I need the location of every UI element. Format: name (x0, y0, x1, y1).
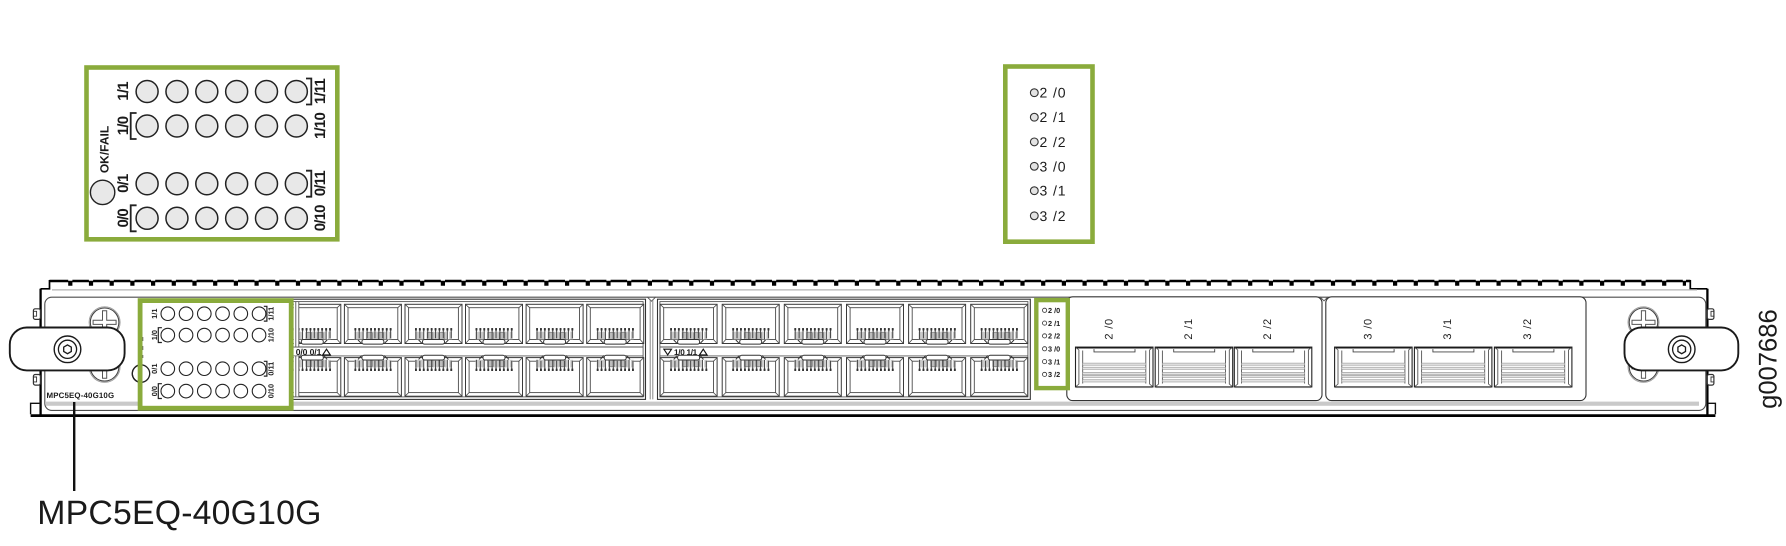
svg-text:3 /2: 3 /2 (1522, 318, 1534, 340)
svg-text:0/11: 0/11 (312, 171, 329, 197)
svg-text:0/0 0/1: 0/0 0/1 (296, 347, 322, 357)
svg-text:2 /2: 2 /2 (1262, 318, 1274, 340)
svg-text:0/10: 0/10 (312, 205, 329, 231)
svg-text:3 /2: 3 /2 (1048, 370, 1060, 379)
svg-text:2 /0: 2 /0 (1048, 306, 1060, 315)
svg-text:1/1: 1/1 (150, 309, 159, 319)
svg-text:1/11: 1/11 (312, 78, 329, 104)
svg-text:3 /2: 3 /2 (1040, 208, 1067, 224)
svg-text:0/1: 0/1 (115, 174, 132, 193)
svg-text:2 /1: 2 /1 (1040, 109, 1067, 125)
svg-text:MPC5EQ-40G10G: MPC5EQ-40G10G (37, 494, 321, 532)
svg-text:1/10: 1/10 (312, 113, 329, 139)
svg-text:0/11: 0/11 (266, 362, 275, 376)
svg-text:MPC5EQ-40G10G: MPC5EQ-40G10G (47, 391, 115, 400)
svg-text:1/0: 1/0 (150, 330, 159, 340)
svg-text:3 /0: 3 /0 (1362, 318, 1374, 340)
svg-text:2 /0: 2 /0 (1040, 85, 1067, 101)
svg-text:1/0 1/1: 1/0 1/1 (674, 348, 698, 357)
svg-text:g007686: g007686 (1755, 309, 1783, 409)
svg-text:2 /2: 2 /2 (1048, 332, 1060, 341)
svg-text:0/10: 0/10 (266, 384, 275, 398)
svg-text:0/0: 0/0 (115, 209, 132, 228)
svg-text:2 /2: 2 /2 (1040, 134, 1067, 150)
svg-text:3 /1: 3 /1 (1442, 318, 1454, 340)
svg-text:2 /0: 2 /0 (1103, 318, 1115, 340)
svg-text:OK/FAIL: OK/FAIL (98, 126, 112, 173)
svg-text:2 /1: 2 /1 (1048, 319, 1060, 328)
svg-text:2 /1: 2 /1 (1183, 318, 1195, 340)
svg-text:3 /0: 3 /0 (1040, 158, 1067, 174)
svg-text:1/0: 1/0 (115, 116, 132, 135)
svg-text:1/1: 1/1 (115, 82, 132, 101)
svg-text:3 /0: 3 /0 (1048, 345, 1060, 354)
svg-text:0/0: 0/0 (150, 386, 159, 396)
svg-text:3 /1: 3 /1 (1048, 357, 1060, 366)
svg-text:0/1: 0/1 (150, 364, 159, 374)
svg-text:1/11: 1/11 (266, 307, 275, 321)
svg-text:1/10: 1/10 (266, 328, 275, 342)
svg-text:3 /1: 3 /1 (1040, 183, 1067, 199)
